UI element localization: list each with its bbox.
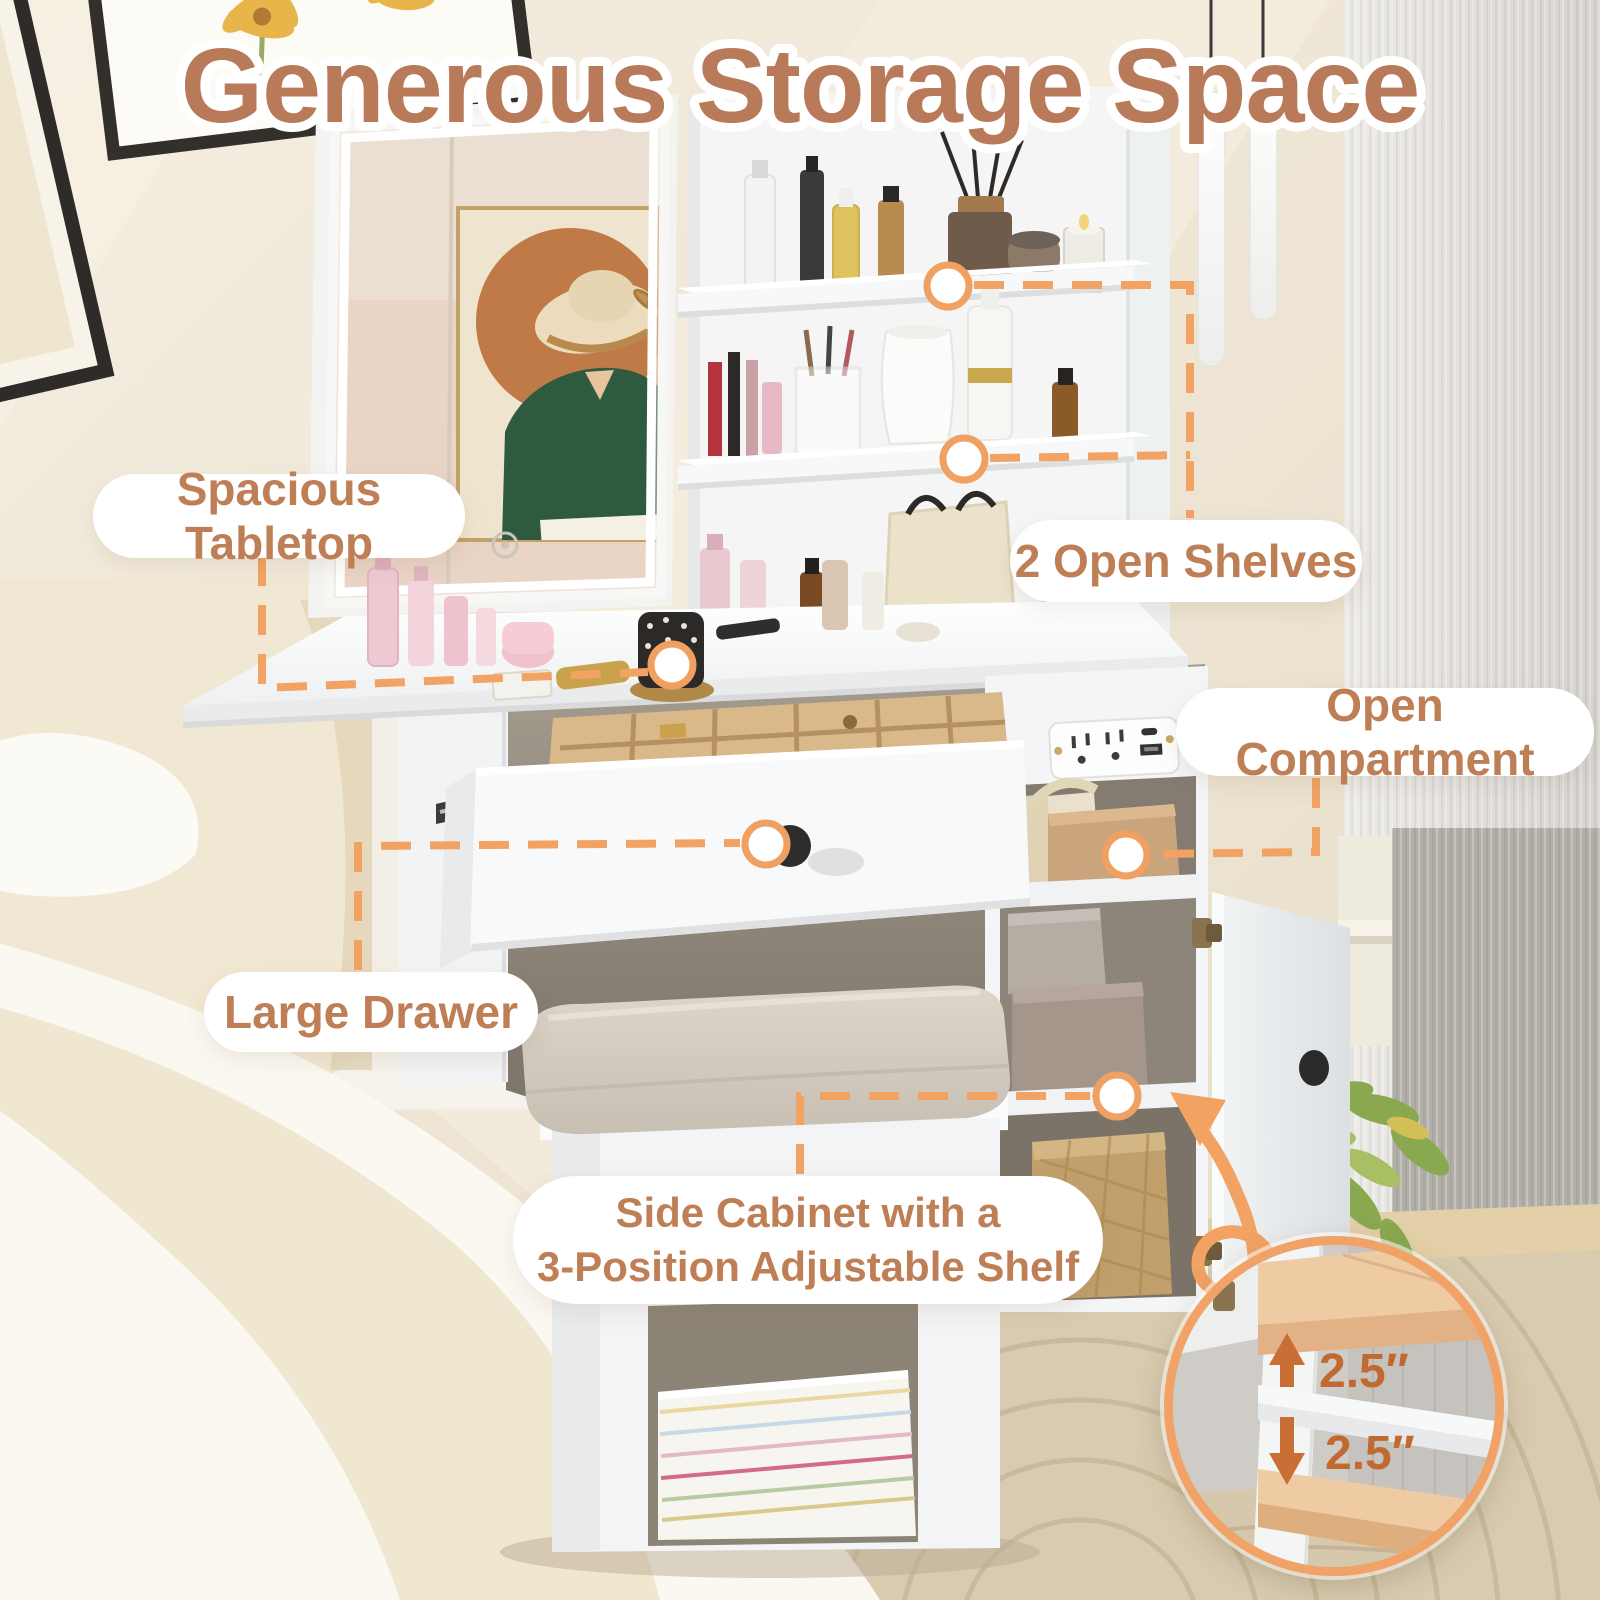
pendant-tube-2 (1250, 76, 1277, 320)
pendant-tube-1 (1198, 92, 1225, 366)
callout-spacious-tabletop: Spacious Tabletop (93, 474, 465, 558)
power-strip (1049, 717, 1180, 780)
drawer-knob (769, 825, 811, 867)
brush-cup (796, 326, 860, 456)
callout-large-drawer: Large Drawer (204, 972, 538, 1052)
shelf-gap-detail: 2.5″ 2.5″ (1173, 1245, 1495, 1567)
usb-c-port-icon (1141, 728, 1157, 736)
callout-label: Large Drawer (224, 985, 518, 1039)
callout-label-line2: 3-Position Adjustable Shelf (537, 1240, 1079, 1294)
gap-top-label: 2.5″ (1319, 1345, 1409, 1398)
pump-bottle (968, 288, 1012, 440)
stool-cushion (522, 986, 1010, 1135)
book-stack (658, 1370, 916, 1540)
shelf-gap-inset: 2.5″ 2.5″ (1164, 1236, 1504, 1576)
gap-bottom-label: 2.5″ (1325, 1427, 1415, 1480)
open-compartment (1000, 776, 1196, 892)
cabinet-shelf-compartment (1000, 898, 1196, 1100)
product-infographic: Generous Storage Space Spacious Tabletop… (0, 0, 1600, 1600)
door-knob (1299, 1050, 1329, 1086)
callout-label: 2 Open Shelves (1015, 534, 1358, 588)
inset-hinge-icon (1213, 1281, 1235, 1311)
callout-label: Spacious Tabletop (93, 462, 465, 570)
callout-side-cabinet: Side Cabinet with a 3-Position Adjustabl… (513, 1176, 1103, 1304)
callout-open-shelves: 2 Open Shelves (1010, 520, 1362, 602)
callout-label-line1: Side Cabinet with a (615, 1186, 1000, 1240)
callout-open-compartment: Open Compartment (1176, 688, 1594, 776)
reflected-artwork (458, 208, 678, 548)
callout-label: Open Compartment (1176, 678, 1594, 786)
